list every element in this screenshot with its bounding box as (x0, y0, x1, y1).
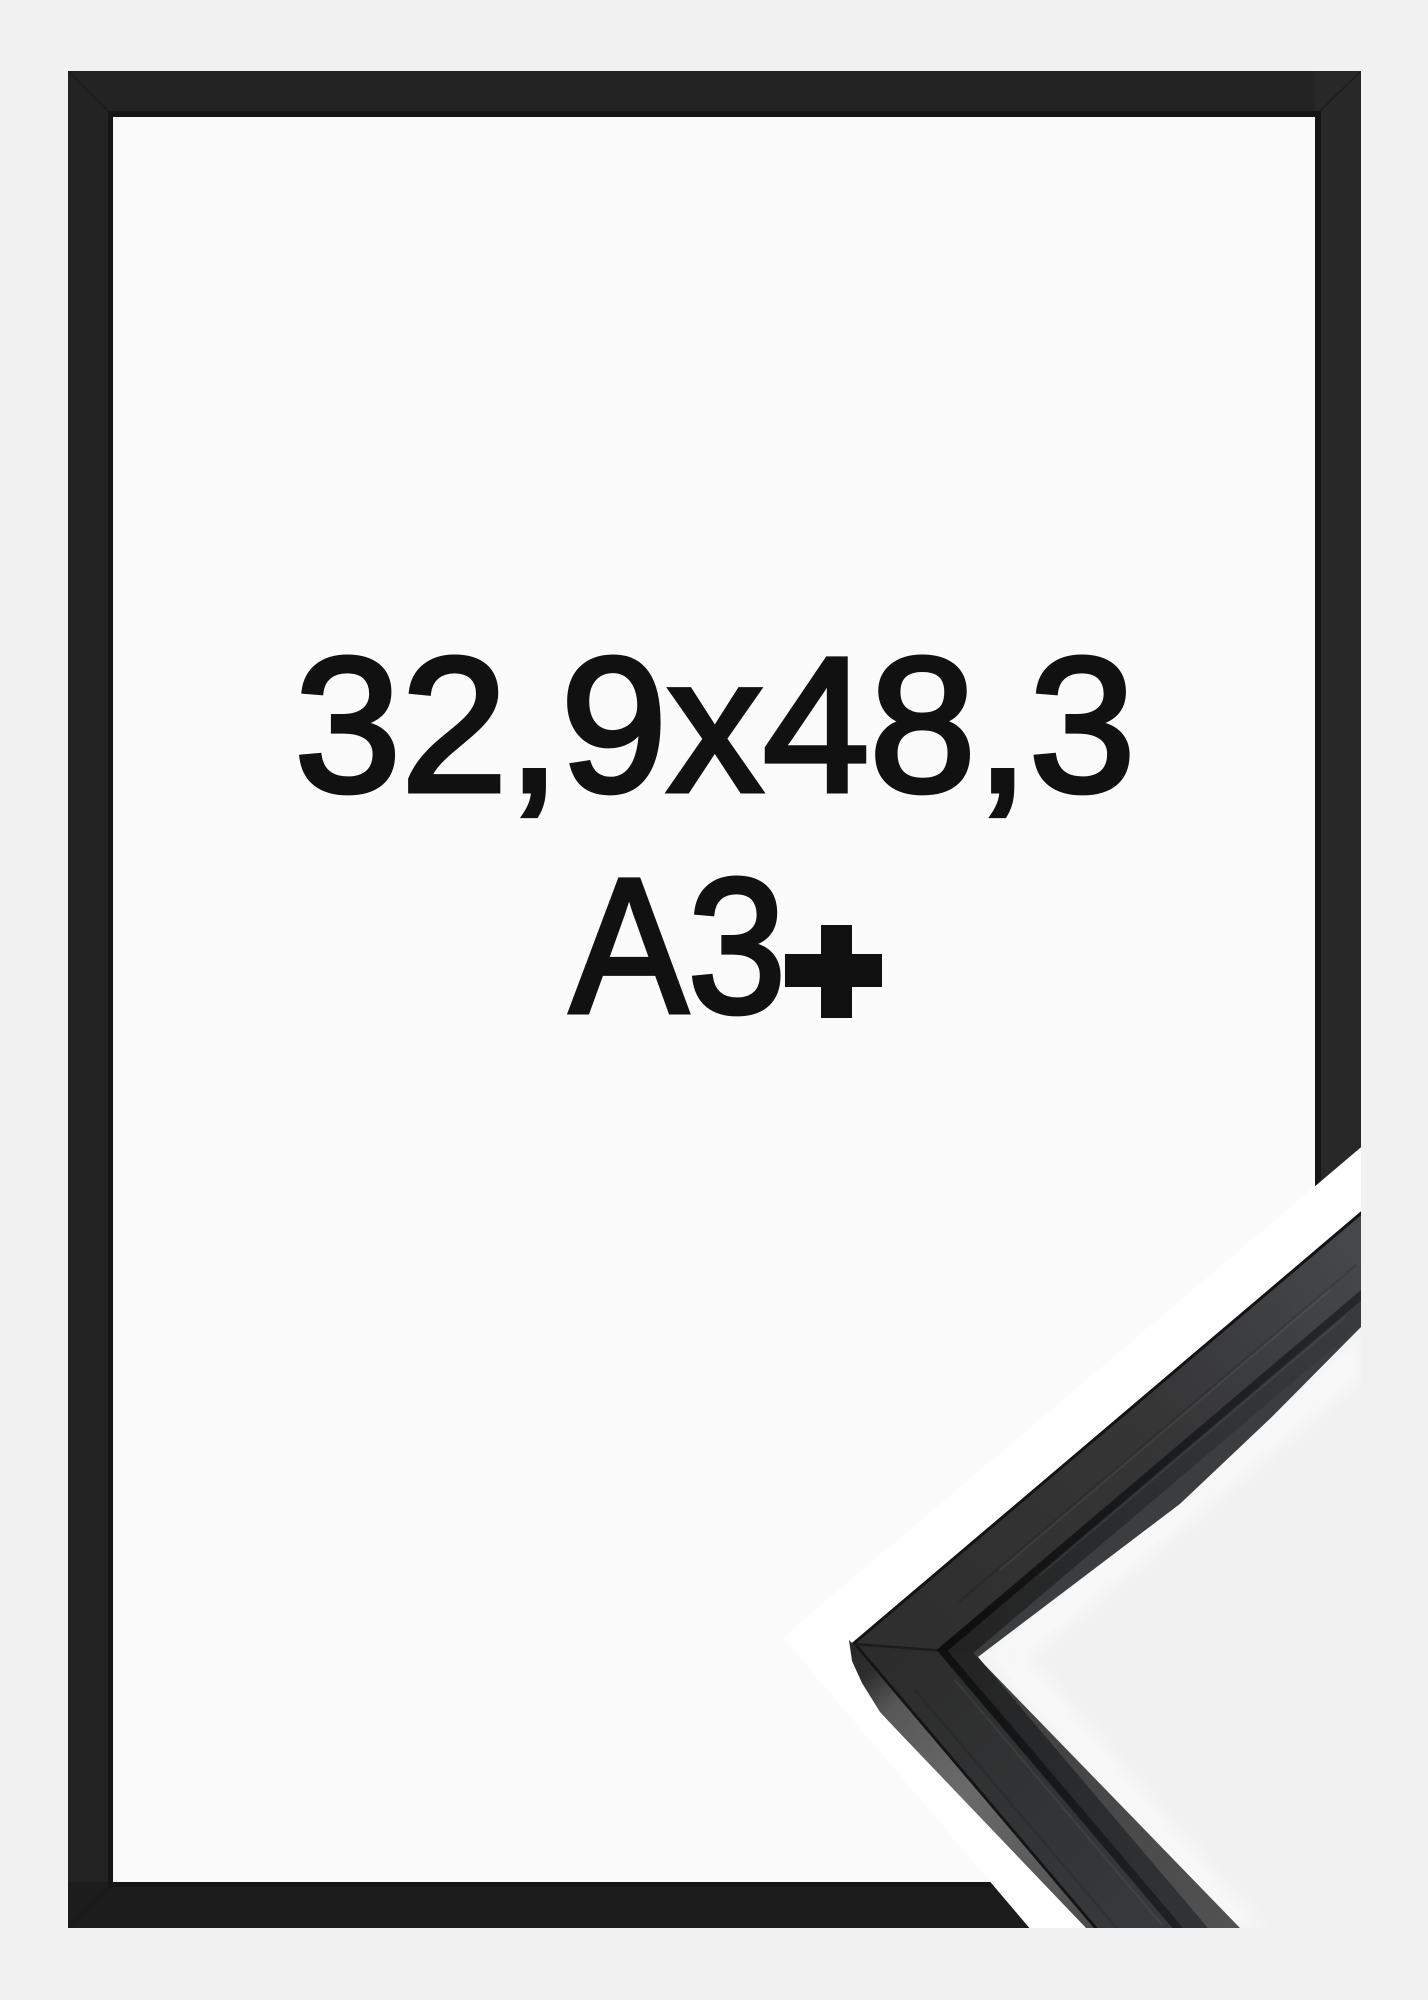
svg-text:A3: A3 (570, 838, 786, 1053)
svg-text:32,9x48,3: 32,9x48,3 (295, 617, 1136, 832)
